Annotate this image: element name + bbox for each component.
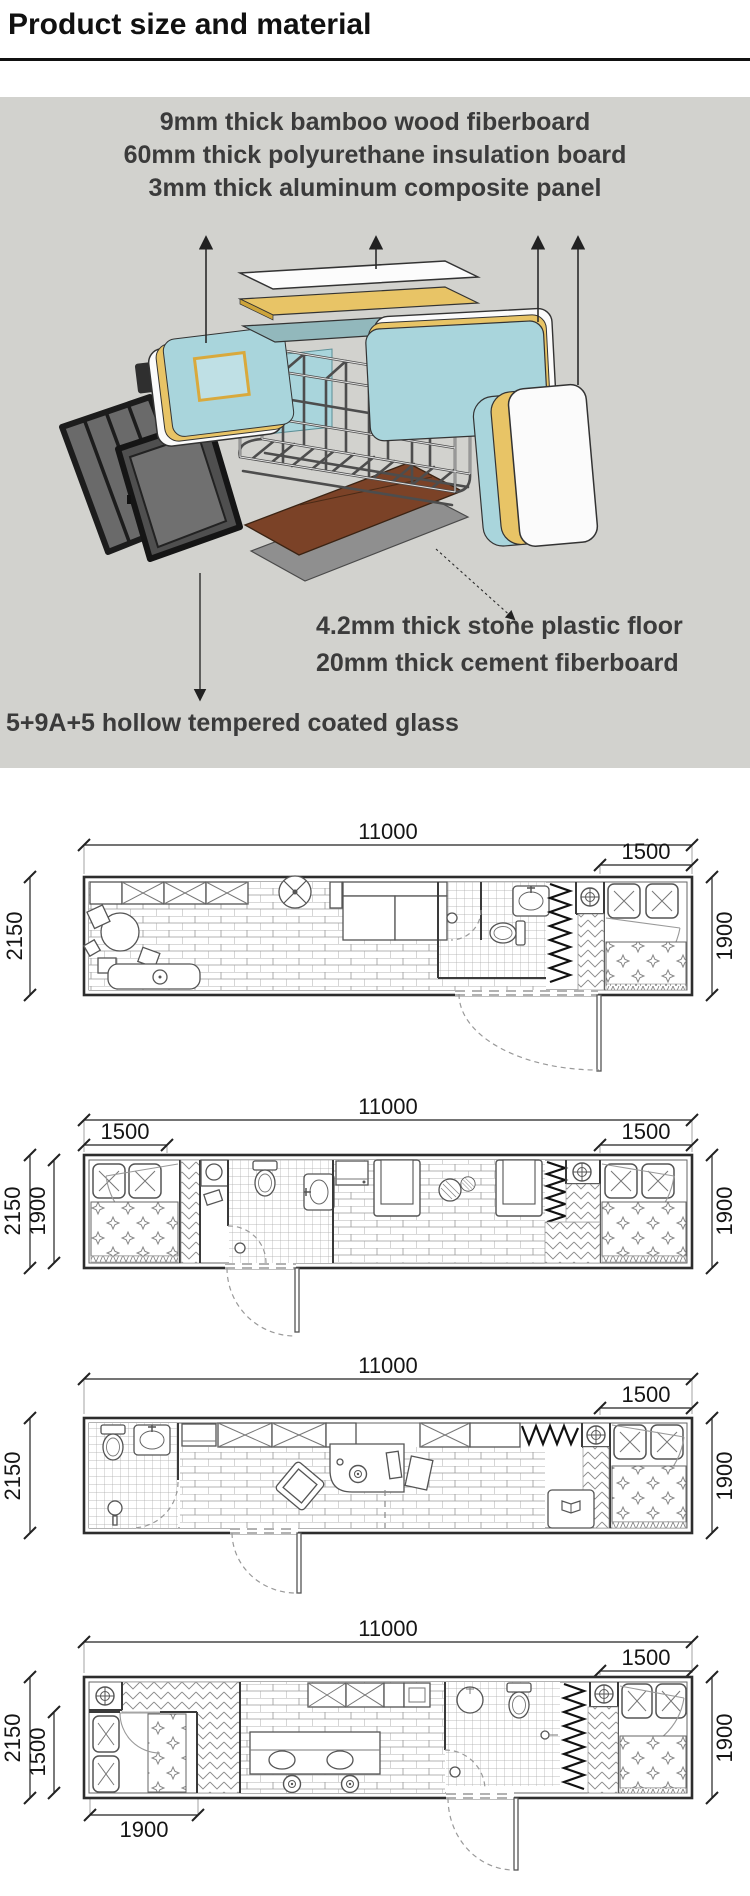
dim-right: 1900 <box>706 871 737 1001</box>
dim-right: 1900 <box>706 1412 737 1539</box>
material-labels-floor: 4.2mm thick stone plastic floor 20mm thi… <box>316 608 683 682</box>
dim-top-right: 1500 <box>594 839 698 874</box>
sink-icon <box>134 1425 170 1455</box>
toilet-icon <box>253 1161 277 1196</box>
svg-text:1900: 1900 <box>25 1187 50 1236</box>
pillow-icon <box>646 884 678 918</box>
entry-floor <box>578 914 604 990</box>
bar-stool <box>284 1776 301 1793</box>
dim-right: 1900 <box>706 1149 737 1274</box>
svg-text:11000: 11000 <box>358 1616 418 1641</box>
floor-drain-icon <box>595 1685 613 1703</box>
dim-right: 1900 <box>706 1671 737 1804</box>
toilet-icon <box>507 1683 531 1718</box>
floor-plan-1: 11000 1500 2150 1900 <box>0 818 750 1080</box>
dim-left: 2150 <box>0 1412 36 1539</box>
entry-door <box>225 1263 299 1336</box>
material-label: 3mm thick aluminum composite panel <box>0 172 750 205</box>
svg-text:1900: 1900 <box>120 1817 169 1842</box>
entry-door <box>455 990 601 1071</box>
floor-drain-icon <box>587 1426 605 1444</box>
kitchen-cabinets <box>90 882 248 904</box>
material-labels-top: 9mm thick bamboo wood fiberboard 60mm th… <box>0 106 750 205</box>
product-page: Product size and material <box>0 0 750 1896</box>
svg-text:11000: 11000 <box>358 819 418 844</box>
floor-drain-icon <box>581 888 599 906</box>
dim-bottom-left: 1900 <box>84 1798 204 1842</box>
toilet-icon <box>490 921 525 945</box>
svg-text:1500: 1500 <box>622 839 671 864</box>
svg-text:1900: 1900 <box>712 1452 737 1501</box>
svg-text:2150: 2150 <box>0 1452 25 1501</box>
desk-stool <box>350 1466 367 1483</box>
pillow-icon <box>608 884 640 918</box>
title-divider <box>0 58 750 61</box>
dim-top: 11000 <box>78 1616 698 1673</box>
armchair <box>496 1160 542 1216</box>
material-label: 60mm thick polyurethane insulation board <box>0 139 750 172</box>
page-title: Product size and material <box>8 8 371 42</box>
svg-text:2150: 2150 <box>2 912 27 961</box>
svg-text:11000: 11000 <box>358 1094 418 1119</box>
materials-section: 9mm thick bamboo wood fiberboard 60mm th… <box>0 97 750 768</box>
dim-top: 11000 <box>78 1094 698 1152</box>
svg-text:1500: 1500 <box>622 1119 671 1144</box>
floor-plan-3: 11000 1500 2150 1900 <box>0 1340 750 1600</box>
material-label: 4.2mm thick stone plastic floor <box>316 608 683 645</box>
svg-text:1900: 1900 <box>712 1187 737 1236</box>
svg-text:11000: 11000 <box>358 1353 418 1378</box>
sofa <box>330 882 447 940</box>
floor-drain-icon <box>96 1687 114 1705</box>
floor-plan-2: 11000 1500 1500 2150 1900 1900 <box>0 1080 750 1340</box>
top-cabinets <box>308 1683 430 1707</box>
kitchen-counter <box>108 964 200 989</box>
bar-stool <box>342 1776 359 1793</box>
material-label: 20mm thick cement fiberboard <box>316 645 683 682</box>
dim-top-right: 1500 <box>594 1382 698 1415</box>
dim-top: 11000 <box>78 819 698 874</box>
material-label-glass: 5+9A+5 hollow tempered coated glass <box>6 709 459 738</box>
dim-top-right: 1500 <box>594 1119 698 1153</box>
floor-drain-icon <box>573 1163 591 1181</box>
dim-left: 2150 <box>2 871 36 1001</box>
svg-text:1500: 1500 <box>622 1382 671 1407</box>
left-end-wall-panels <box>132 326 296 450</box>
svg-text:1900: 1900 <box>712 912 737 961</box>
svg-text:1500: 1500 <box>101 1119 150 1144</box>
dim-top: 11000 <box>78 1353 698 1414</box>
ceiling-fan-icon <box>279 876 311 908</box>
round-table <box>439 1179 461 1201</box>
entry-door <box>446 1792 518 1870</box>
material-label: 9mm thick bamboo wood fiberboard <box>0 106 750 139</box>
dim-top-right: 1500 <box>594 1645 698 1677</box>
svg-text:1500: 1500 <box>622 1645 671 1670</box>
entry-door <box>230 1528 301 1593</box>
toilet-icon <box>101 1425 125 1460</box>
svg-text:2150: 2150 <box>0 1187 25 1236</box>
right-end-wall-panels <box>471 383 598 550</box>
armchair <box>374 1160 420 1216</box>
svg-text:1500: 1500 <box>25 1728 50 1777</box>
svg-text:2150: 2150 <box>0 1714 25 1763</box>
svg-text:1900: 1900 <box>712 1714 737 1763</box>
bedroom-right <box>602 1164 686 1262</box>
sink-icon <box>513 886 549 916</box>
sink-icon <box>304 1174 334 1210</box>
floor-plan-4: 11000 1500 2150 1500 1900 1900 <box>0 1600 750 1896</box>
reading-chair <box>548 1490 594 1528</box>
dim-top-left: 1500 <box>78 1119 173 1153</box>
